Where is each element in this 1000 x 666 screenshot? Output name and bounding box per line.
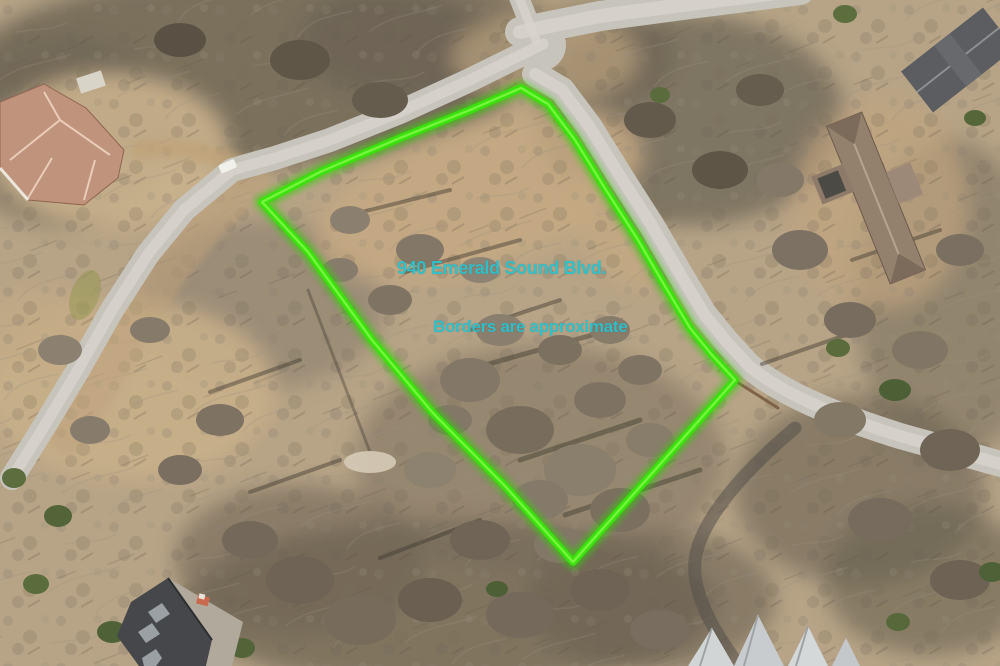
- aerial-photo: 940 Emerald Sound Blvd. Borders are appr…: [0, 0, 1000, 666]
- disclaimer-label: Borders are approximate: [433, 317, 627, 337]
- address-label: 940 Emerald Sound Blvd.: [397, 258, 606, 279]
